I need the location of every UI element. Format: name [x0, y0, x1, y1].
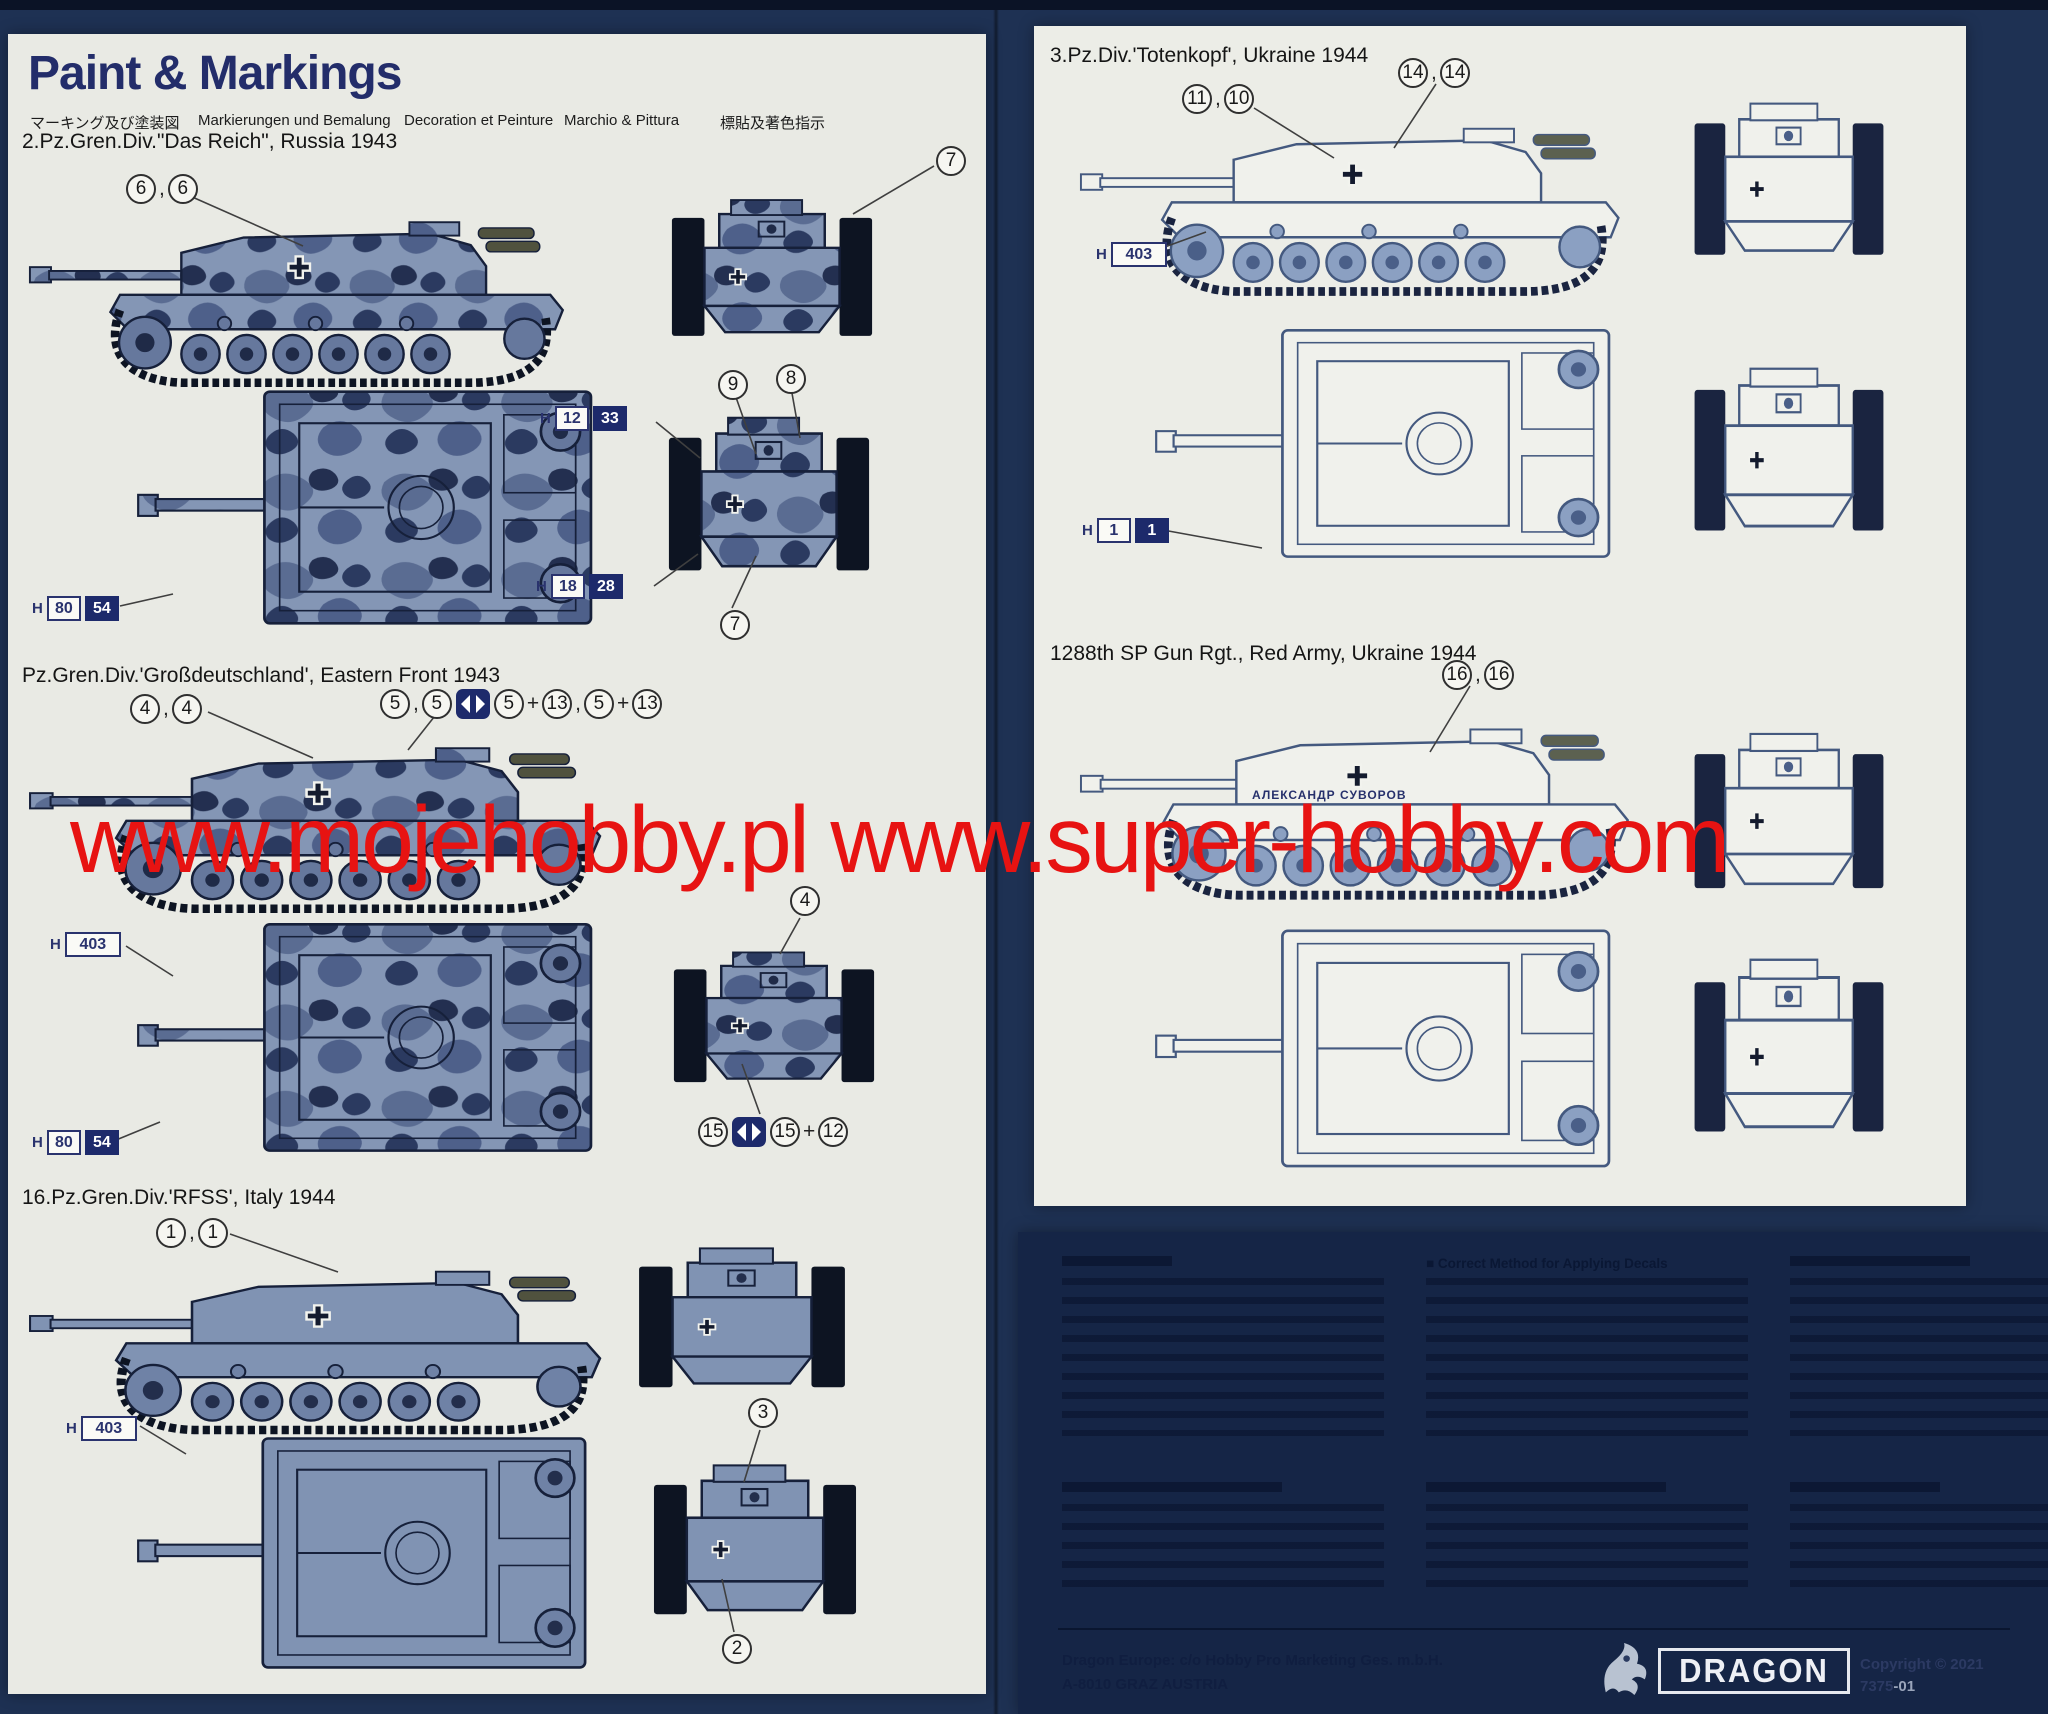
paint-code-chip: H 12 33	[540, 406, 627, 431]
footer-address-line2: A-8010 GRAZ AUSTRIA	[1062, 1676, 1228, 1693]
paint-code-chip: H 403	[50, 932, 121, 957]
decal-callout-group: 4 , 4	[130, 694, 202, 724]
decal-callout: 4	[130, 694, 160, 724]
paint-brand: H	[1082, 522, 1093, 539]
decal-callout: 4	[172, 694, 202, 724]
instruction-heading-bar	[1790, 1256, 1970, 1266]
tank-top-view	[136, 1426, 598, 1681]
decal-instructions-panel: Correct Method for Applying Decals Drago…	[1018, 1232, 2048, 1714]
decal-callout-group: 14 , 14	[1398, 58, 1470, 88]
tank-rear-view	[663, 402, 875, 602]
watermark-text: www.mojehobby.pl www.super-hobby.com	[70, 786, 1727, 895]
paint-brand: H	[536, 578, 547, 595]
instruction-block-en: Correct Method for Applying Decals	[1426, 1256, 1748, 1436]
decal-callout: 5	[494, 689, 524, 719]
tank-front-view	[1689, 88, 1889, 286]
instruction-heading-bar	[1062, 1482, 1282, 1492]
instruction-block-zh	[1790, 1482, 2048, 1594]
instruction-text-lines	[1426, 1504, 1748, 1594]
decal-callout: 9	[718, 370, 748, 400]
instruction-text-lines	[1062, 1278, 1384, 1436]
paint-brand: H	[540, 410, 551, 427]
tank-front-view	[666, 186, 878, 364]
paint-code-dark: 54	[85, 596, 119, 621]
scan-edge	[0, 0, 2048, 10]
paint-code-light: 18	[551, 574, 585, 599]
paint-brand: H	[32, 1134, 43, 1151]
paint-brand: H	[50, 936, 61, 953]
decal-callout: 6	[126, 174, 156, 204]
callout-separator: ,	[1215, 84, 1221, 114]
dragon-logo-text: DRAGON	[1679, 1652, 1829, 1691]
instruction-block-fr	[1426, 1482, 1748, 1594]
tank-rear-view	[648, 1450, 862, 1645]
decal-callout: 14	[1398, 58, 1428, 88]
decal-callout-group: 9	[718, 370, 748, 400]
decal-callout-group: 5 , 5 5 + 13 , 5 + 13	[380, 688, 662, 720]
tank-front-view	[1689, 942, 1889, 1167]
decal-callout-group: 1 , 1	[156, 1218, 228, 1248]
decal-callout-group: 7	[936, 146, 966, 176]
decal-callout-group: 16 , 16	[1442, 660, 1514, 690]
instruction-heading-en: Correct Method for Applying Decals	[1426, 1256, 1748, 1271]
instruction-block-de	[1790, 1256, 2048, 1436]
decal-callout-group: 6 , 6	[126, 174, 198, 204]
subtitle-it: Marchio & Pittura	[564, 112, 679, 129]
decal-callout: 8	[776, 364, 806, 394]
decal-callout: 1	[156, 1218, 186, 1248]
subtitle-zh: 標貼及著色指示	[720, 112, 825, 133]
instruction-text-lines	[1426, 1278, 1748, 1436]
callout-separator: ,	[159, 174, 165, 204]
paint-code-light: 80	[47, 1130, 81, 1155]
paint-code-light: 1	[1097, 518, 1131, 543]
paint-code-light: 403	[1111, 242, 1167, 267]
tank-front-view	[1689, 352, 1889, 564]
dragon-logo: DRAGON	[1658, 1648, 1850, 1694]
callout-plus: +	[527, 689, 539, 719]
item-number: 7375-01	[1860, 1678, 1915, 1695]
decal-callout-group: 8	[776, 364, 806, 394]
instruction-text-lines	[1790, 1504, 2048, 1594]
decal-callout: 15	[698, 1117, 728, 1147]
callout-separator: ,	[163, 694, 169, 724]
decal-callout-group: 7	[720, 610, 750, 640]
decal-callout: 7	[720, 610, 750, 640]
marking-guide-panel: 3.Pz.Div.'Totenkopf', Ukraine 1944 11 , …	[1034, 26, 1966, 1206]
decal-callout: 5	[584, 689, 614, 719]
paint-code-light: 80	[47, 596, 81, 621]
paint-code-chip: H 80 54	[32, 596, 119, 621]
paint-code-chip: H 403	[66, 1416, 137, 1441]
decal-mirror-icon	[731, 1116, 767, 1148]
footer-address-line1: Dragon Europe: c/o Hobby Pro Marketing G…	[1062, 1652, 1443, 1669]
callout-plus: +	[617, 689, 629, 719]
callout-plus: +	[803, 1117, 815, 1147]
subtitle-fr: Decoration et Peinture	[404, 112, 553, 129]
decal-callout: 11	[1182, 84, 1212, 114]
tank-side-view	[1079, 90, 1659, 308]
tank-front-view	[633, 1234, 851, 1416]
decal-callout: 14	[1440, 58, 1470, 88]
decal-callout: 2	[722, 1634, 752, 1664]
instruction-heading-bar	[1790, 1482, 1940, 1492]
paint-code-chip: H 1 1	[1082, 518, 1169, 543]
paint-brand: H	[66, 1420, 77, 1437]
paint-code-chip: H 80 54	[32, 1130, 119, 1155]
paint-code-light: 403	[65, 932, 121, 957]
decal-callout: 10	[1224, 84, 1254, 114]
decal-callout: 1	[198, 1218, 228, 1248]
paint-code-dark: 1	[1135, 518, 1169, 543]
callout-separator: ,	[413, 689, 419, 719]
paint-brand: H	[32, 600, 43, 617]
decal-callout: 5	[422, 689, 452, 719]
instruction-text-lines	[1790, 1278, 2048, 1436]
tank-top-view	[1154, 918, 1622, 1180]
decal-mirror-icon	[455, 688, 491, 720]
callout-separator: ,	[189, 1218, 195, 1248]
copyright-text: Copyright © 2021	[1860, 1656, 1984, 1673]
decal-callout-group: 11 , 10	[1182, 84, 1254, 114]
paint-code-chip: H 403	[1096, 242, 1167, 267]
page-title: Paint & Markings	[28, 46, 401, 101]
decal-callout: 15	[770, 1117, 800, 1147]
instruction-block-it	[1062, 1482, 1384, 1594]
decal-callout: 13	[632, 689, 662, 719]
callout-separator: ,	[1431, 58, 1437, 88]
tank-side-view	[28, 184, 603, 399]
tank-top-view	[136, 379, 604, 637]
decal-callout-group: 2	[722, 1634, 752, 1664]
paint-code-dark: 54	[85, 1130, 119, 1155]
item-number-main: 7375	[1860, 1678, 1893, 1695]
section-heading-das-reich: 2.Pz.Gren.Div."Das Reich", Russia 1943	[22, 130, 397, 154]
paint-code-dark: 28	[589, 574, 623, 599]
section-heading-rfss: 16.Pz.Gren.Div.'RFSS', Italy 1944	[22, 1186, 335, 1210]
decal-callout: 16	[1442, 660, 1472, 690]
callout-separator: ,	[575, 689, 581, 719]
decal-callout: 16	[1484, 660, 1514, 690]
subtitle-de: Markierungen und Bemalung	[198, 112, 391, 129]
decal-callout-group: 3	[748, 1398, 778, 1428]
decal-callout: 3	[748, 1398, 778, 1428]
instruction-block-ja	[1062, 1256, 1384, 1436]
decal-callout: 13	[542, 689, 572, 719]
footer-divider	[1058, 1628, 2010, 1630]
section-heading-red-army: 1288th SP Gun Rgt., Red Army, Ukraine 19…	[1050, 642, 1476, 666]
paint-code-light: 403	[81, 1416, 137, 1441]
decal-callout-group: 15 15 + 12	[698, 1116, 848, 1148]
decal-callout: 6	[168, 174, 198, 204]
tank-top-view	[1154, 318, 1622, 570]
paint-code-chip: H 18 28	[536, 574, 623, 599]
section-heading-totenkopf: 3.Pz.Div.'Totenkopf', Ukraine 1944	[1050, 44, 1368, 68]
tank-front-view	[668, 939, 880, 1109]
callout-separator: ,	[1475, 660, 1481, 690]
paint-code-dark: 33	[593, 406, 627, 431]
decal-callout: 7	[936, 146, 966, 176]
instruction-text-lines	[1062, 1504, 1384, 1594]
item-number-suffix: -01	[1893, 1678, 1915, 1695]
instruction-heading-bar	[1426, 1482, 1666, 1492]
section-heading-grossdeutschland: Pz.Gren.Div.'Großdeutschland', Eastern F…	[22, 664, 500, 688]
paint-brand: H	[1096, 246, 1107, 263]
paint-code-light: 12	[555, 406, 589, 431]
tank-side-view	[28, 1234, 643, 1446]
decal-callout: 5	[380, 689, 410, 719]
decal-callout: 12	[818, 1117, 848, 1147]
instruction-heading-bar	[1062, 1256, 1172, 1266]
instruction-sheet: Paint & Markings マーキング及び塗装図 Markierungen…	[0, 0, 2048, 1714]
tank-top-view	[136, 912, 604, 1164]
dragon-emblem-icon	[1598, 1638, 1650, 1700]
